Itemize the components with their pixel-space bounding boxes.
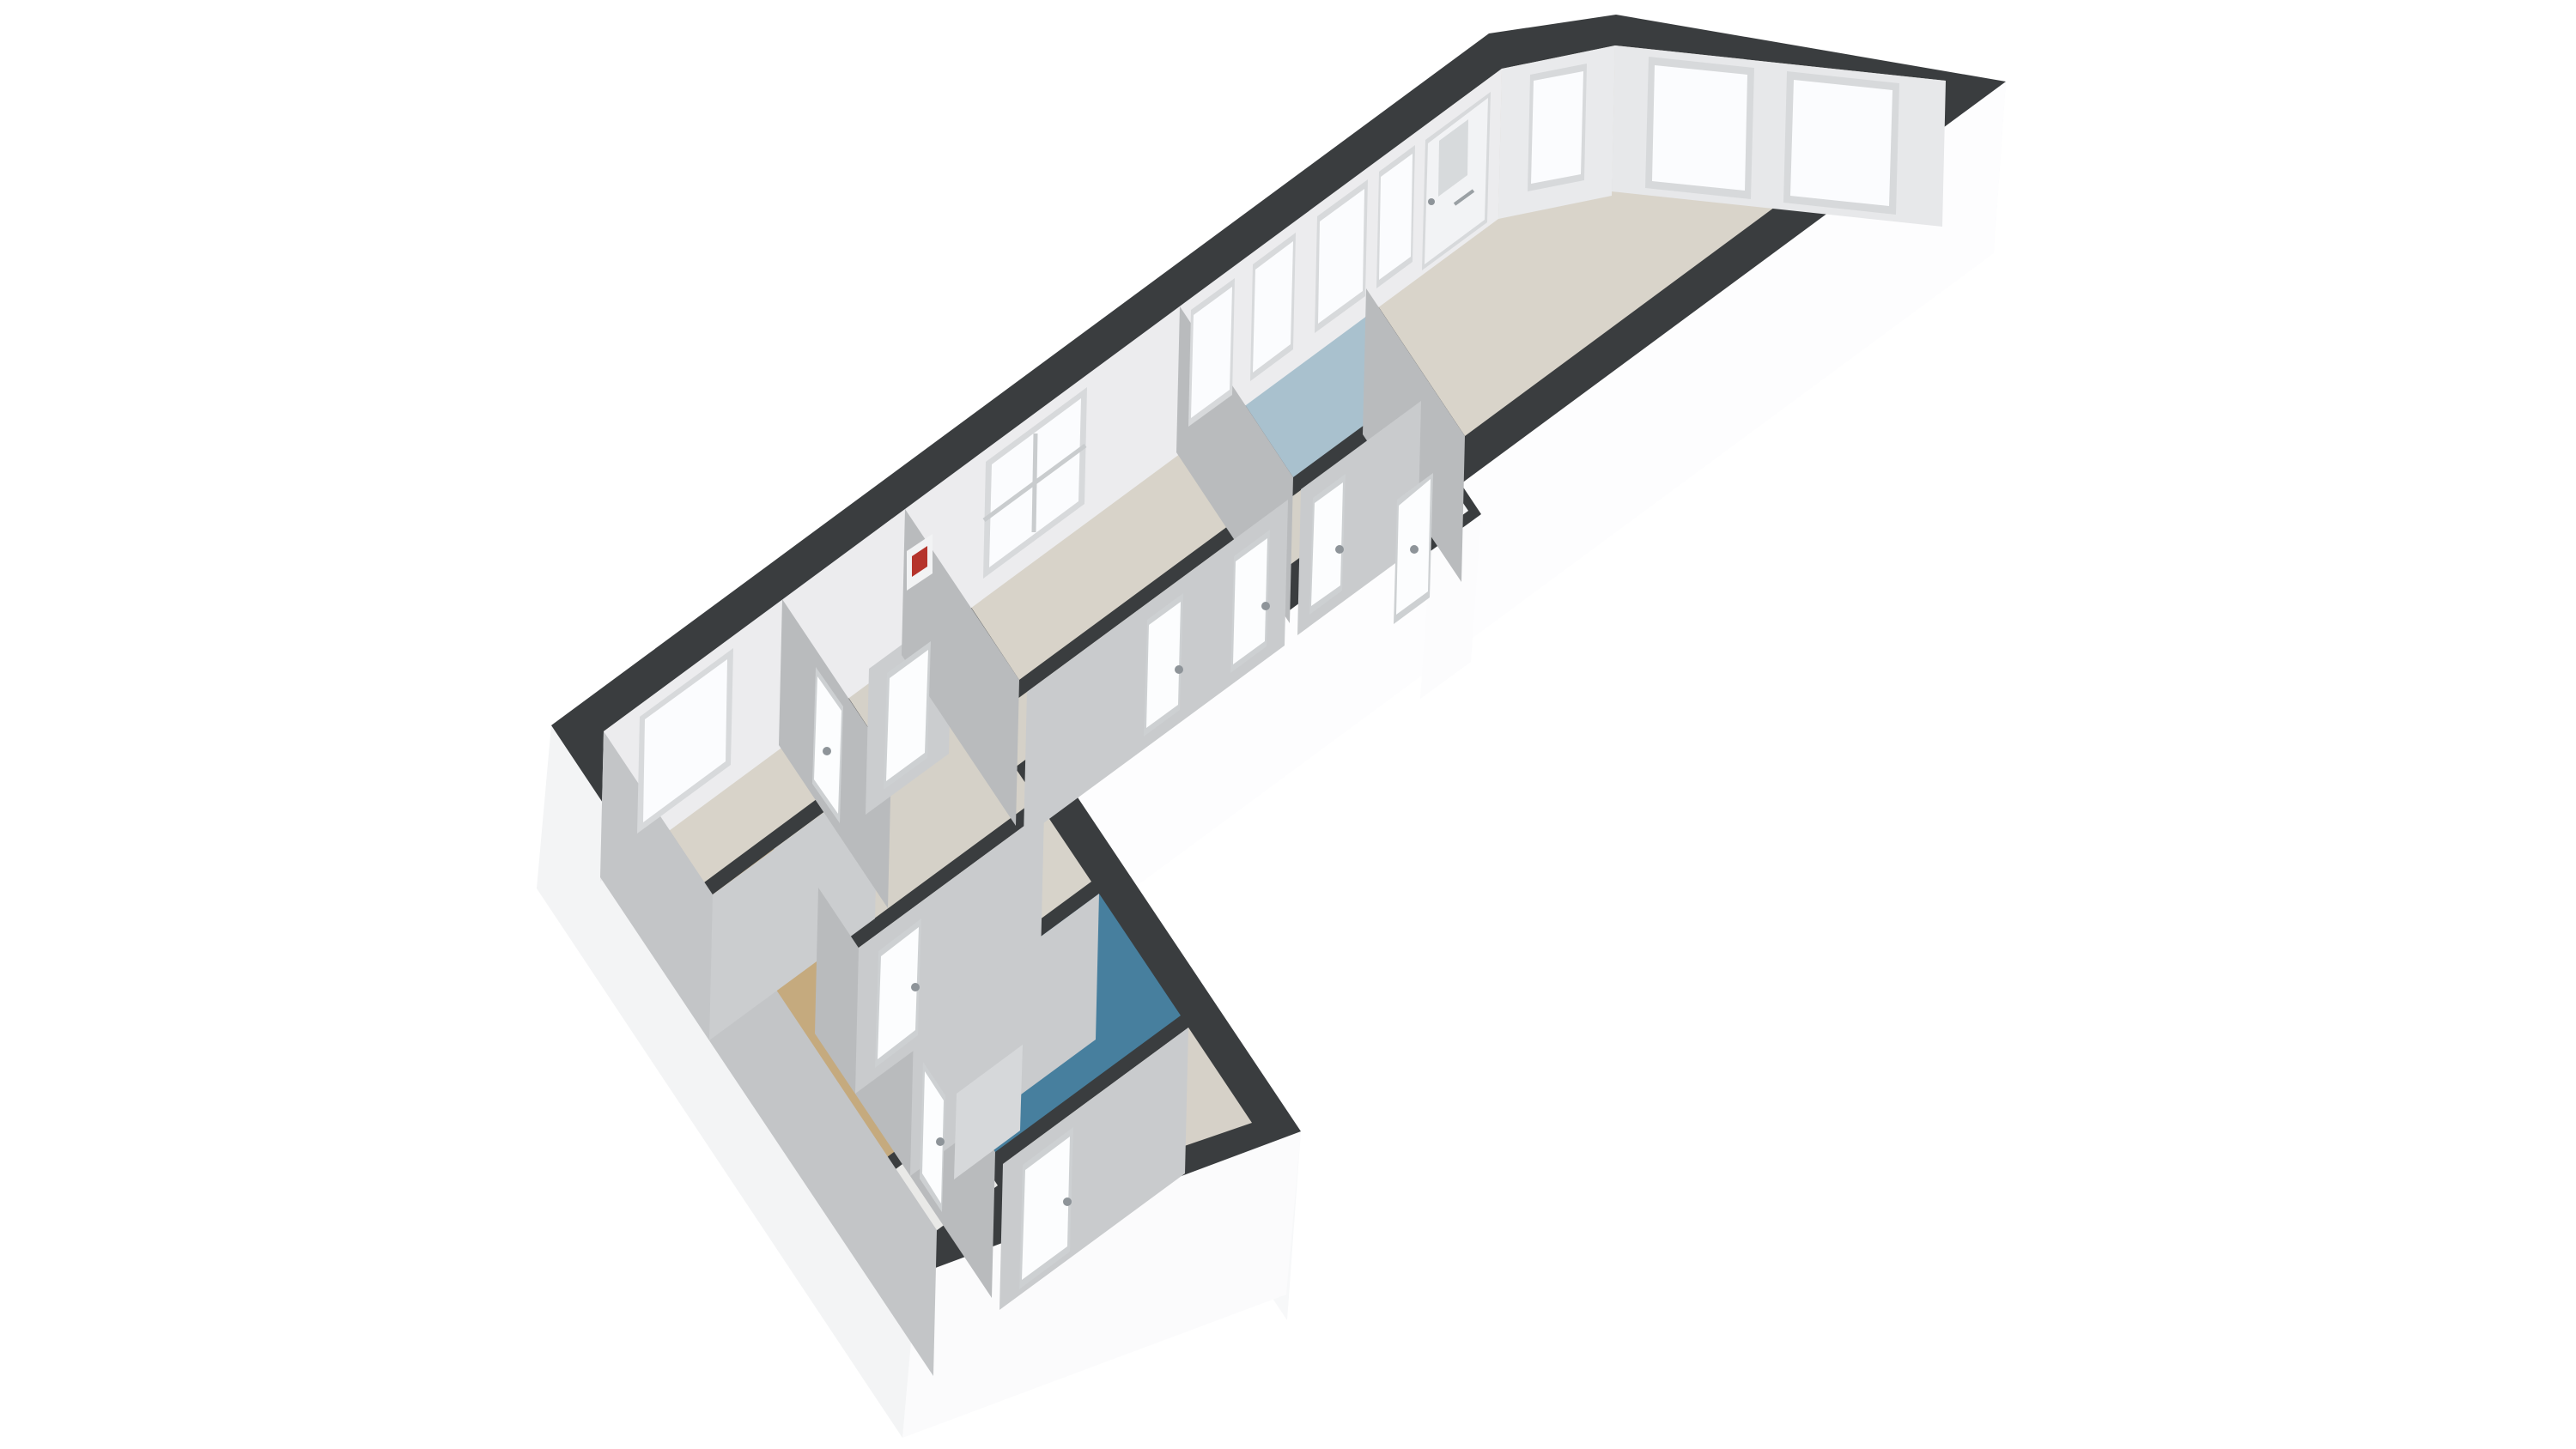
floorplan-viewport (0, 0, 2576, 1449)
handle-bedroom1-door (823, 747, 831, 755)
handle-bottom-room-door (1063, 1197, 1072, 1206)
handle-front-door (1410, 545, 1419, 554)
window-glass-slant-2 (1790, 80, 1893, 206)
window-glass-chamfer (1531, 71, 1583, 184)
handle-kitchen-door (1335, 545, 1344, 554)
handle-storage-door (911, 983, 920, 991)
handle-bathroom-door (936, 1137, 945, 1146)
handle-bedroom2-door-b (1261, 602, 1270, 610)
floorplan-3d-render (0, 0, 2576, 1449)
window-glass-slant-1 (1652, 65, 1747, 191)
handle-glass-door (1428, 198, 1435, 205)
handle-bedroom2-door-a (1175, 665, 1183, 674)
